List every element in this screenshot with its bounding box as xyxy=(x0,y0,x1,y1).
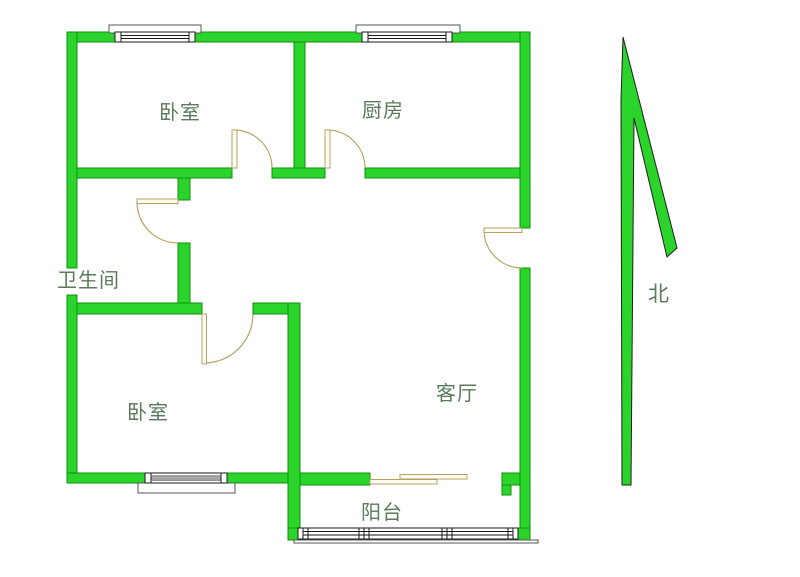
window-kitchen xyxy=(356,25,460,42)
room-label-kitchen: 厨房 xyxy=(362,100,404,122)
window-balcony xyxy=(294,528,538,543)
door-entrance xyxy=(484,228,522,268)
door-bedroom-bottom xyxy=(202,314,253,364)
north-arrow-icon xyxy=(621,37,677,485)
room-label-balcony: 阳台 xyxy=(361,502,403,524)
room-label-bedroom-top: 卧室 xyxy=(159,102,201,124)
floorplan-canvas: 卧室 厨房 卫生间 卧室 客厅 阳台 北 xyxy=(0,0,800,577)
door-bathroom xyxy=(137,199,178,243)
door-bedroom-top xyxy=(232,130,272,168)
interior-walls xyxy=(77,42,520,528)
window-bedroom-bottom xyxy=(138,473,235,493)
room-label-living-room: 客厅 xyxy=(436,383,478,405)
compass-north-label: 北 xyxy=(648,283,670,305)
room-label-bathroom: 卫生间 xyxy=(55,270,122,292)
window-bedroom-top xyxy=(109,25,201,42)
door-kitchen xyxy=(325,130,365,168)
sliding-door-balcony xyxy=(370,475,467,485)
room-label-bedroom-bottom: 卧室 xyxy=(127,402,169,424)
